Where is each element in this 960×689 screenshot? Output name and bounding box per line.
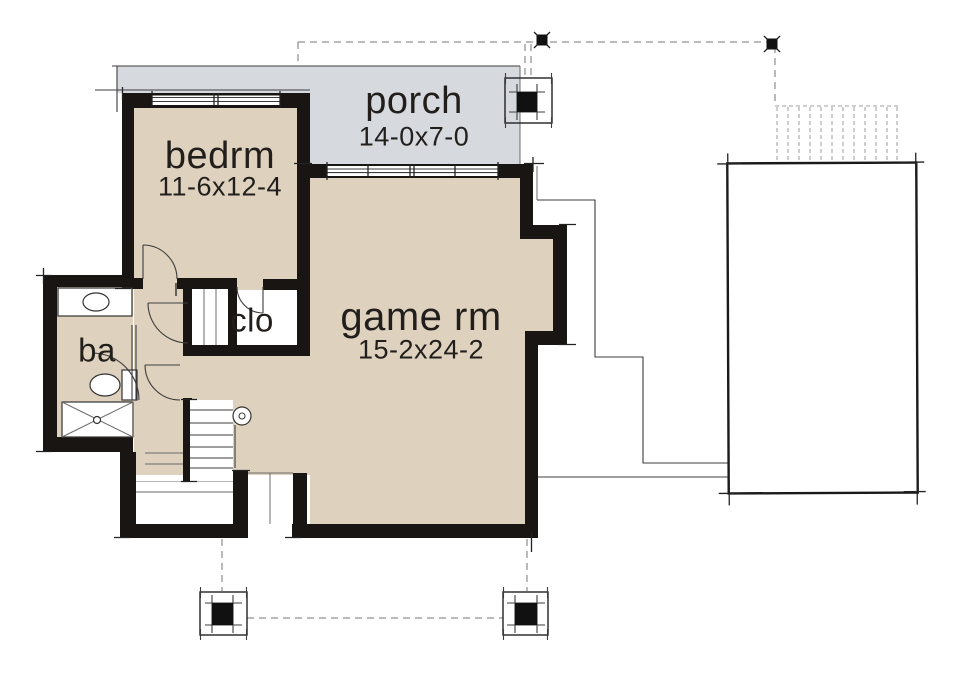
floor-plan: porch 14-0x7-0 bedrm 11-6x12-4 game rm 1…	[0, 0, 960, 689]
deck-hatch	[775, 106, 898, 162]
room-dims-bedroom: 11-6x12-4	[158, 174, 282, 201]
room-label-bedroom: bedrm	[165, 137, 275, 175]
post-marker-cross	[534, 32, 550, 48]
shower-icon	[62, 402, 133, 437]
room-label-closet: clo	[230, 304, 274, 337]
foundation-column-marker-left	[200, 587, 247, 640]
room-label-porch: porch	[365, 82, 463, 120]
room-dims-game-room: 15-2x24-2	[358, 337, 484, 364]
post-marker-cross	[764, 36, 780, 52]
adjacent-structure-outline	[717, 153, 926, 506]
foundation-column-marker-right	[503, 587, 548, 640]
sink-icon	[58, 288, 132, 316]
room-dims-porch: 14-0x7-0	[359, 124, 470, 151]
room-label-game-room: game rm	[340, 297, 501, 337]
room-label-bath: ba	[78, 334, 116, 367]
